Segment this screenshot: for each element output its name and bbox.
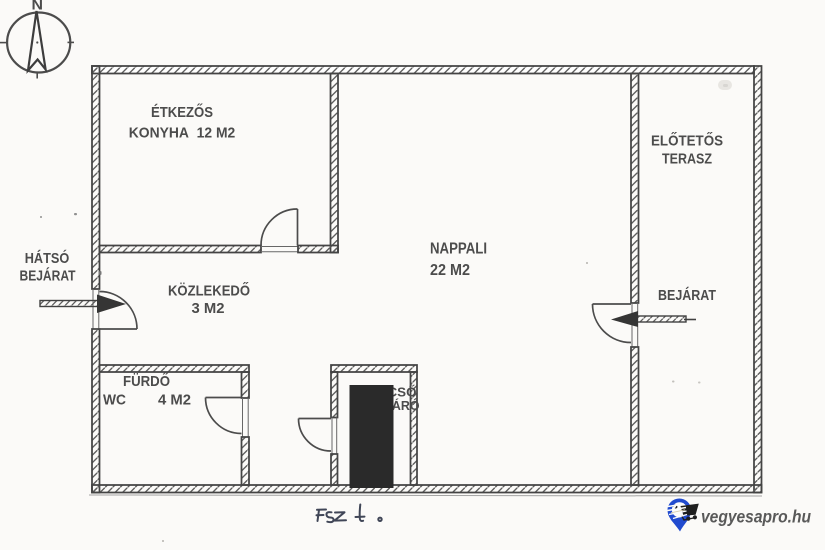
svg-text:ÉTKEZŐS: ÉTKEZŐS <box>151 103 213 121</box>
svg-text:TERASZ: TERASZ <box>662 151 712 168</box>
svg-text:KONYHA 12 M2: KONYHA 12 M2 <box>129 125 236 142</box>
svg-text:KÖZLEKEDŐ: KÖZLEKEDŐ <box>168 282 250 300</box>
svg-text:BEJÁRAT: BEJÁRAT <box>20 268 76 285</box>
svg-text:HÁTSÓ: HÁTSÓ <box>25 249 70 267</box>
svg-text:N: N <box>32 0 44 14</box>
svg-text:ELŐTETŐS: ELŐTETŐS <box>651 132 723 150</box>
svg-text:4 M2: 4 M2 <box>158 392 191 409</box>
svg-text:3 M2: 3 M2 <box>192 300 225 317</box>
svg-text:WC: WC <box>103 392 126 409</box>
svg-text:BEJÁRAT: BEJÁRAT <box>658 287 716 304</box>
svg-text:FÜRDŐ: FÜRDŐ <box>123 372 170 390</box>
svg-text:NAPPALI: NAPPALI <box>430 241 487 258</box>
svg-text:22 M2: 22 M2 <box>430 262 470 279</box>
svg-text:vegyesapro.hu: vegyesapro.hu <box>701 507 811 527</box>
